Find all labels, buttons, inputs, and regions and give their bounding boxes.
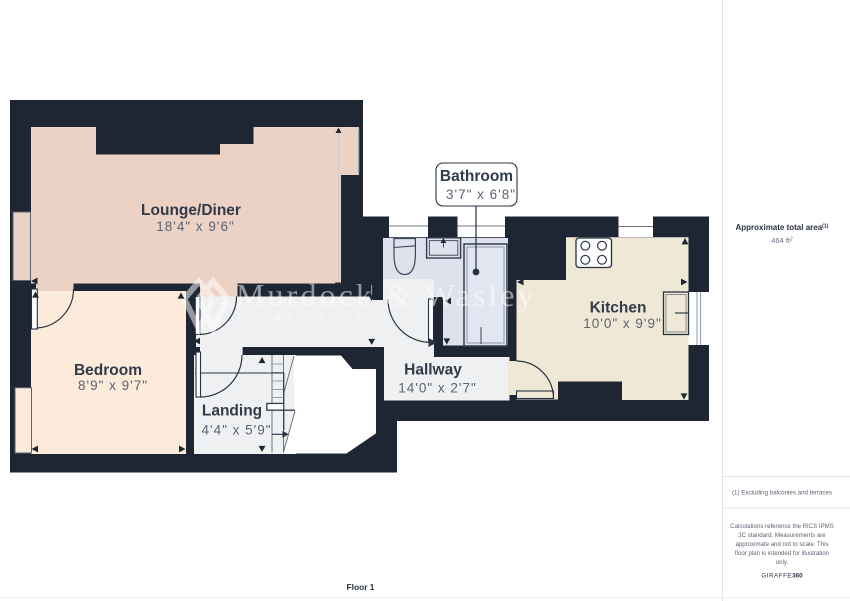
svg-text:3'7" x 6'8": 3'7" x 6'8" — [446, 187, 516, 202]
svg-text:10'0" x 9'9": 10'0" x 9'9" — [583, 316, 662, 331]
svg-text:Kitchen: Kitchen — [590, 300, 647, 317]
svg-text:approximate and not to scale.: approximate and not to scale. This — [735, 541, 828, 548]
svg-text:18'4" x 9'6": 18'4" x 9'6" — [156, 219, 235, 234]
svg-text:4'4" x 5'9": 4'4" x 5'9" — [201, 423, 271, 438]
svg-text:(1) Excluding balconies and te: (1) Excluding balconies and terraces — [732, 490, 832, 497]
svg-text:Landing: Landing — [202, 403, 262, 420]
svg-text:floor plan is intended for ill: floor plan is intended for illustration — [735, 550, 829, 557]
svg-text:Bathroom: Bathroom — [440, 168, 513, 185]
svg-text:Hallway: Hallway — [404, 362, 462, 379]
svg-text:ESTATE AGENTS: ESTATE AGENTS — [238, 312, 394, 324]
svg-text:3C standard. Measurements are: 3C standard. Measurements are — [738, 532, 826, 539]
svg-text:GIRAFFE360: GIRAFFE360 — [761, 573, 803, 580]
svg-text:8'9" x 9'7": 8'9" x 9'7" — [78, 378, 148, 393]
svg-text:Bedroom: Bedroom — [74, 362, 142, 379]
svg-text:Floor 1: Floor 1 — [347, 582, 375, 592]
svg-text:Calculations reference the RIC: Calculations reference the RICS IPMS — [730, 523, 834, 530]
svg-text:Approximate total area(1): Approximate total area(1) — [735, 223, 828, 232]
svg-text:14'0" x 2'7": 14'0" x 2'7" — [398, 381, 477, 396]
svg-text:464 ft2: 464 ft2 — [771, 236, 793, 245]
svg-text:Lounge/Diner: Lounge/Diner — [141, 202, 241, 219]
svg-text:only.: only. — [776, 559, 789, 566]
svg-text:Murdock & Wasley: Murdock & Wasley — [236, 277, 537, 313]
